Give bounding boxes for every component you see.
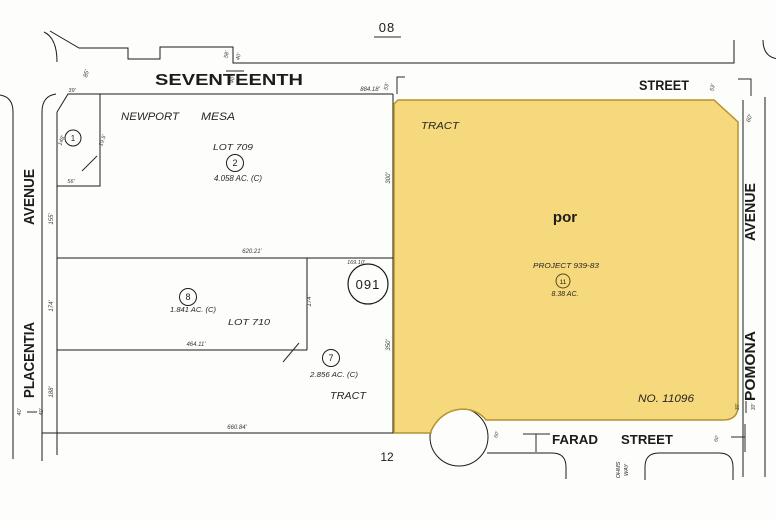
lot709-label: LOT 709 (213, 142, 253, 152)
dim-60-farad-west: 60' (493, 430, 501, 439)
dim-169-10: 169.10' (347, 260, 366, 266)
placentia-avenue-type: AVENUE (21, 169, 38, 225)
parcel-map: 08 12 091 SEVENTEENTH STREET AVENUE PLAC… (0, 0, 776, 521)
farad-street-name: FARAD (552, 432, 598, 447)
placentia-street-name: PLACENTIA (21, 322, 38, 398)
dim-884-18: 884.18' (360, 87, 380, 93)
dim-53-tract-nw: 53' (383, 82, 391, 91)
parcel-map-page: 08 12 091 SEVENTEENTH STREET AVENUE PLAC… (0, 0, 776, 521)
ohms-way-name-line1: OHMS (616, 461, 622, 478)
parcel1-corner-arrow (82, 156, 97, 171)
tract11096-project-label: PROJECT 939-83 (533, 263, 599, 270)
farad-south-row-line (487, 453, 566, 479)
dim-85: 85' (83, 68, 91, 78)
seventeenth-street-type: STREET (639, 78, 690, 93)
seventeenth-south-row-line (57, 94, 393, 112)
parcel7-area: 2.856 AC. (C) (309, 370, 359, 379)
dim-56: 56' (67, 179, 75, 185)
dim-155: 155' (49, 213, 55, 225)
dim-350: 350' (386, 339, 392, 351)
placentia-east-row-line (42, 94, 56, 461)
seventeenth-pomona-corner-curve (763, 40, 776, 59)
newport-mesa-word2: MESA (201, 111, 235, 123)
seventeenth-north-row-line (50, 31, 734, 63)
dim-60-farad-east: 60' (713, 434, 721, 443)
lot710-label: LOT 710 (228, 317, 270, 327)
tract-nw-corner-bracket (397, 77, 405, 94)
dim-620-21: 620.21' (242, 249, 262, 255)
parcel8-number: 8 (185, 292, 190, 302)
dim-174-lot710: 174' (307, 295, 313, 307)
dim-53-pomona: 53' (709, 83, 717, 92)
dim-60-pomona: 60' (746, 113, 755, 123)
pomona-street-name: POMONA (742, 331, 759, 401)
dim-464-11: 464.11' (186, 342, 206, 348)
tract11096-tract-word: TRACT (421, 121, 460, 132)
page-ref-bottom: 12 (380, 450, 394, 464)
dim-30-pomona-right: 30' (751, 403, 757, 411)
dim-39: 39' (68, 88, 76, 94)
ohms-way-name-line2: WAY (624, 464, 630, 476)
parcel8-area: 1.841 AC. (C) (170, 305, 217, 314)
tract11096-number-label: NO. 11096 (638, 393, 695, 405)
parcel11-area: 8.38 AC. (552, 291, 579, 298)
parcel7-number: 7 (328, 353, 333, 363)
lot710-corner-arrow (283, 343, 299, 362)
dim-188: 188' (49, 386, 55, 398)
pomona-seventeenth-corner-bracket (738, 79, 751, 96)
farad-street-type: STREET (621, 432, 673, 447)
farad-south-block-outline (645, 453, 733, 480)
sheet-091-label: 091 (356, 277, 381, 292)
dim-40-placentia-right: 40' (39, 407, 45, 415)
dim-30-pomona-left: 30' (735, 403, 741, 411)
pomona-avenue-type: AVENUE (742, 183, 759, 241)
dim-174-west: 174' (49, 300, 55, 312)
dim-300: 300' (386, 172, 392, 184)
tract11096-por-label: por (553, 209, 577, 226)
page-ref-top: 08 (379, 20, 395, 35)
parcel2-area: 4.058 AC. (C) (214, 174, 262, 183)
newport-mesa-tract-word: TRACT (330, 391, 367, 402)
newport-mesa-word1: NEWPORT (121, 111, 180, 123)
parcel1-number: 1 (71, 134, 76, 143)
farad-centerline-tick (523, 434, 550, 452)
dim-40-placentia-left: 40' (17, 407, 23, 415)
dim-660-84: 660.84' (227, 425, 247, 431)
dim-58: 58' (223, 50, 231, 59)
parcel11-number: 11 (560, 279, 567, 286)
placentia-west-row-line (0, 95, 13, 459)
parcel2-number: 2 (232, 158, 237, 168)
placentia-north-corner-curve (44, 32, 57, 62)
dim-40-seventeenth-upper: 40' (235, 52, 243, 61)
